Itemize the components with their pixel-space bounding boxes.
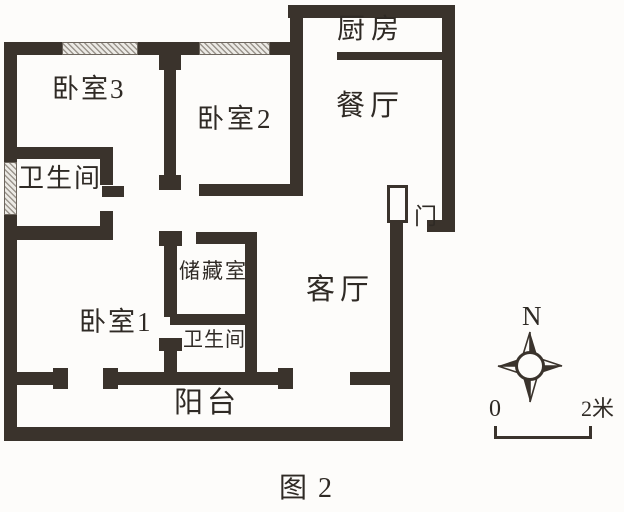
wall-bed2-south xyxy=(199,184,303,196)
wall-bath-north-bottom xyxy=(17,226,113,240)
window-bedroom3 xyxy=(62,42,138,55)
wall-storage-bath-divider xyxy=(170,314,257,325)
wall-west xyxy=(4,42,17,441)
wall-cap xyxy=(278,368,293,389)
figure-caption: 图 2 xyxy=(279,475,334,503)
living-room-label: 客厅 xyxy=(306,276,374,305)
wall-south xyxy=(4,427,403,441)
wall-cap xyxy=(159,175,181,190)
wall-balcony-north-b xyxy=(103,372,293,385)
wall-east xyxy=(442,5,455,232)
scale-bar xyxy=(494,426,592,439)
bathroom-north-label: 卫生间 xyxy=(18,166,102,192)
compass-rose-icon xyxy=(496,330,564,404)
wall-kitchen-left xyxy=(290,5,303,195)
entrance-door-leaf xyxy=(387,185,408,223)
compass-north-label: N xyxy=(522,303,542,330)
wall-bed2-bed3-divider xyxy=(164,55,176,190)
wall-storage-right xyxy=(245,232,257,380)
window-bedroom2 xyxy=(199,42,270,55)
wall-living-east xyxy=(390,222,403,434)
wall-bath-north-top xyxy=(17,147,113,159)
bathroom-south-label: 卫生间 xyxy=(183,330,246,350)
scale-start-label: 0 xyxy=(489,397,501,421)
balcony-label: 阳台 xyxy=(174,389,240,418)
entrance-door-label: 门 xyxy=(414,205,437,228)
kitchen-label: 厨房 xyxy=(337,16,405,44)
wall-bath-north-door-stub xyxy=(102,186,124,197)
wall-cap xyxy=(103,368,118,389)
bedroom-2-label: 卧室2 xyxy=(197,106,274,133)
wall-cap xyxy=(159,338,182,351)
scale-end-label: 2米 xyxy=(581,398,614,420)
floor-plan: 厨房 餐厅 卧室3 卧室2 卫生间 储藏室 卧室1 卫生间 客厅 阳台 门 N … xyxy=(0,0,624,512)
window-bathroom-north xyxy=(4,162,17,215)
wall-cap xyxy=(159,231,182,246)
wall-cap xyxy=(159,55,181,70)
wall-kitchen-dining-divider xyxy=(337,52,455,60)
storage-room-label: 储藏室 xyxy=(179,261,248,282)
wall-balcony-north-c xyxy=(350,372,390,385)
dining-room-label: 餐厅 xyxy=(336,92,404,121)
bedroom-1-label: 卧室1 xyxy=(79,309,153,336)
bedroom-3-label: 卧室3 xyxy=(52,76,126,103)
wall-cap xyxy=(53,368,68,389)
